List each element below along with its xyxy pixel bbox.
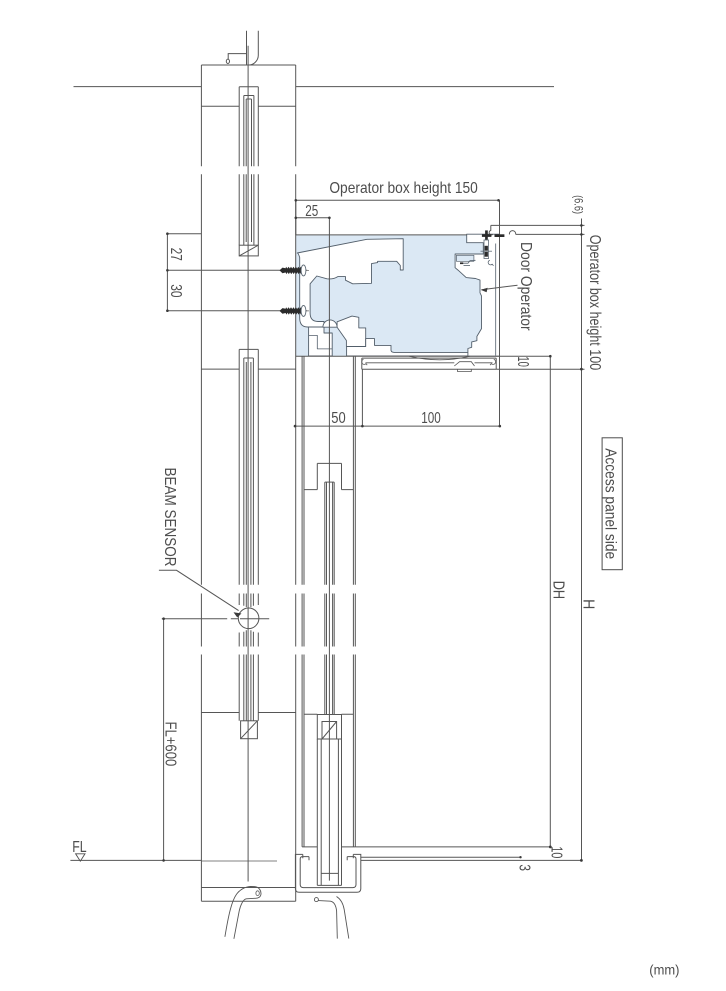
svg-text:25: 25 <box>305 203 318 220</box>
svg-text:30: 30 <box>167 284 184 297</box>
svg-text:DH: DH <box>550 581 567 599</box>
svg-text:H: H <box>579 599 596 609</box>
svg-text:27: 27 <box>167 248 184 261</box>
svg-text:FL: FL <box>72 839 86 856</box>
svg-text:(6.6): (6.6) <box>572 195 586 214</box>
svg-text:Access panel side: Access panel side <box>602 448 619 559</box>
svg-text:50: 50 <box>331 410 345 427</box>
svg-text:BEAM SENSOR: BEAM SENSOR <box>161 468 178 567</box>
svg-text:Door Operator: Door Operator <box>517 242 534 331</box>
svg-text:Operator box height 100: Operator box height 100 <box>586 235 603 371</box>
svg-text:10: 10 <box>514 356 531 367</box>
svg-text:FL+600: FL+600 <box>161 722 178 767</box>
svg-text:3: 3 <box>516 864 533 871</box>
svg-text:Operator box height 150: Operator box height 150 <box>329 180 478 197</box>
svg-text:(mm): (mm) <box>649 963 679 978</box>
svg-text:10: 10 <box>548 846 565 858</box>
svg-text:100: 100 <box>421 410 441 427</box>
